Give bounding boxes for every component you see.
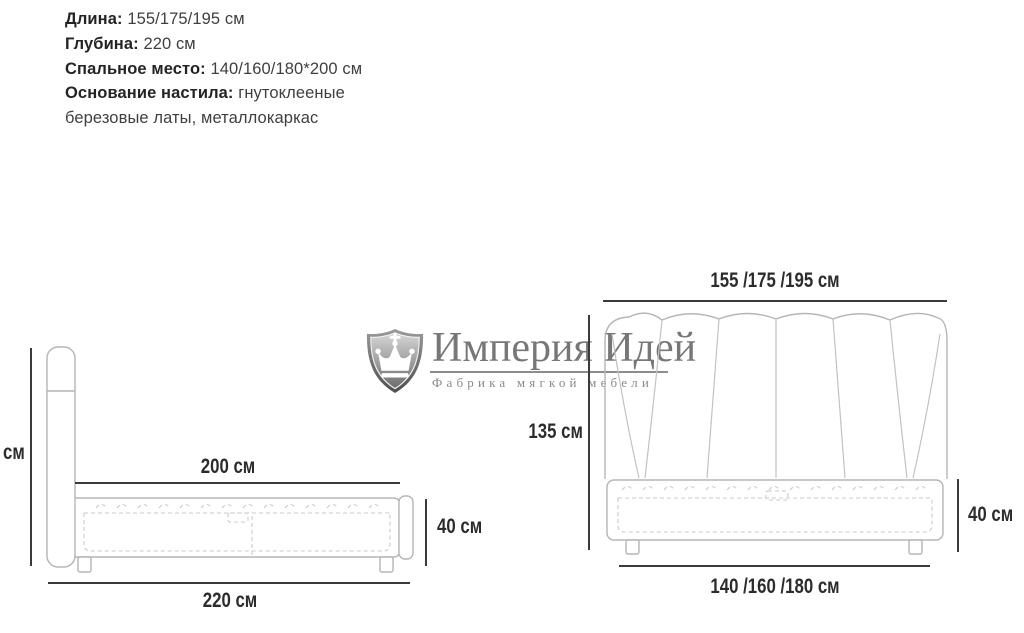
bed-drawings: [0, 0, 1024, 633]
side-height-label: см: [3, 441, 25, 465]
side-base-height-label: 40 см: [437, 515, 482, 539]
front-base-height-label: 40 см: [968, 503, 1013, 527]
front-sleeping-width-label: 140 /160 /180 см: [671, 575, 879, 599]
page: Длина: 155/175/195 см Глубина: 220 см Сп…: [0, 0, 1024, 633]
front-view-drawing: [589, 301, 958, 566]
side-total-length-label: 220 см: [174, 589, 286, 613]
side-length-label: 200 см: [172, 455, 284, 479]
front-height-label: 135 см: [528, 420, 578, 444]
front-width-label: 155 /175 /195 см: [671, 269, 879, 293]
